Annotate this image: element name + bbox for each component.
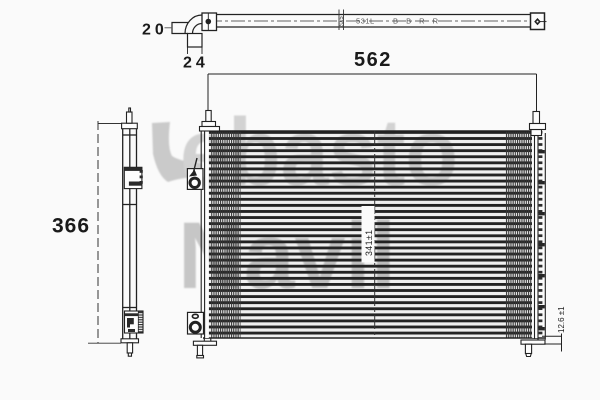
svg-text:12.6 ±1: 12.6 ±1 (557, 306, 566, 333)
svg-text:20.5: 20.5 (339, 16, 345, 28)
svg-text:366: 366 (52, 215, 90, 238)
svg-text:341±1: 341±1 (364, 230, 374, 256)
svg-text:24: 24 (183, 55, 209, 72)
svg-text:B B R R: B B R R (393, 17, 441, 26)
svg-text:562: 562 (354, 49, 392, 71)
svg-text:20: 20 (142, 22, 168, 39)
svg-text:531L: 531L (356, 17, 375, 26)
